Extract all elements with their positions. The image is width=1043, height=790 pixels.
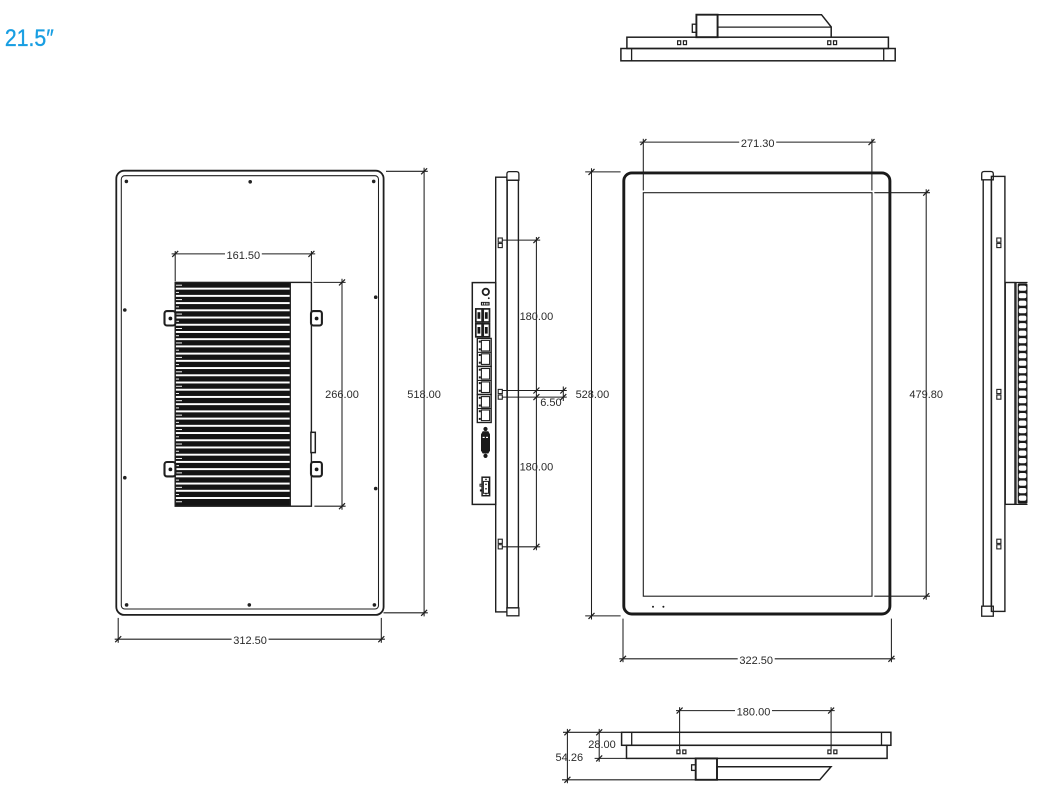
svg-text:161.50: 161.50 [226,250,260,262]
svg-text:312.50: 312.50 [233,635,267,647]
svg-text:479.80: 479.80 [909,389,943,401]
svg-text:266.00: 266.00 [325,389,359,401]
svg-text:518.00: 518.00 [407,389,441,401]
svg-text:54.26: 54.26 [556,752,584,764]
svg-text:271.30: 271.30 [741,138,775,150]
svg-text:180.00: 180.00 [520,461,554,473]
svg-text:528.00: 528.00 [576,389,610,401]
svg-text:6.50: 6.50 [540,397,561,409]
svg-text:180.00: 180.00 [737,707,771,719]
svg-text:322.50: 322.50 [739,655,773,667]
svg-text:21.5″: 21.5″ [5,24,54,52]
svg-text:180.00: 180.00 [520,311,554,323]
svg-text:28.00: 28.00 [588,739,616,751]
